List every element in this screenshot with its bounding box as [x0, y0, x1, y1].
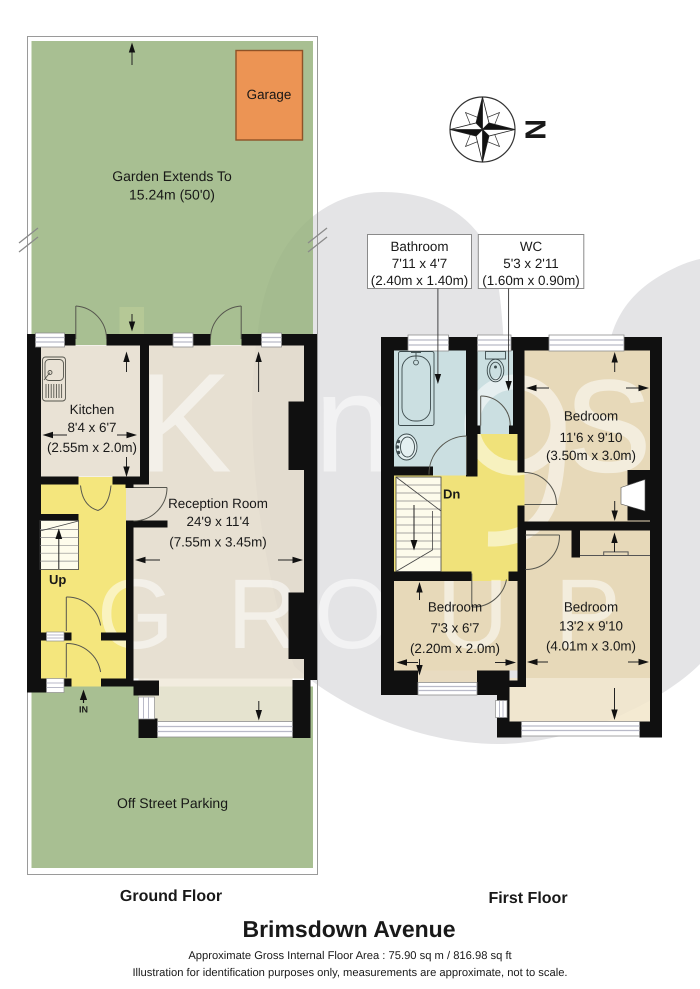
svg-text:Bedroom: Bedroom: [428, 600, 482, 615]
svg-text:Illustration for identificatio: Illustration for identification purposes…: [132, 967, 567, 979]
svg-text:IN: IN: [79, 705, 88, 715]
svg-text:(1.60m x 0.90m): (1.60m x 0.90m): [482, 273, 580, 288]
svg-text:24'9 x 11'4: 24'9 x 11'4: [187, 514, 250, 529]
svg-text:(2.40m x 1.40m): (2.40m x 1.40m): [371, 273, 469, 288]
svg-text:13'2 x 9'10: 13'2 x 9'10: [559, 619, 623, 634]
svg-text:WC: WC: [520, 239, 543, 254]
svg-text:K: K: [138, 344, 232, 502]
svg-text:Reception Room: Reception Room: [168, 496, 268, 511]
svg-text:8'4 x 6'7: 8'4 x 6'7: [67, 420, 116, 435]
svg-text:7'3 x 6'7: 7'3 x 6'7: [430, 621, 479, 636]
svg-text:Off Street Parking: Off Street Parking: [117, 795, 228, 811]
svg-text:Garden Extends To: Garden Extends To: [112, 168, 232, 184]
svg-text:11'6 x 9'10: 11'6 x 9'10: [560, 430, 623, 445]
svg-text:Up: Up: [49, 572, 66, 587]
svg-text:7'11 x 4'7: 7'11 x 4'7: [392, 256, 448, 271]
svg-text:O: O: [314, 558, 391, 669]
svg-text:Garage: Garage: [247, 87, 292, 102]
svg-text:Ground Floor: Ground Floor: [120, 888, 222, 905]
svg-text:(4.01m x 3.0m): (4.01m x 3.0m): [546, 639, 636, 654]
svg-text:Bedroom: Bedroom: [564, 409, 618, 424]
svg-text:Approximate Gross Internal Flo: Approximate Gross Internal Floor Area : …: [188, 950, 512, 962]
svg-text:(7.55m x 3.45m): (7.55m x 3.45m): [169, 535, 267, 550]
svg-text:N: N: [518, 119, 550, 140]
svg-text:First Floor: First Floor: [488, 890, 567, 907]
svg-text:Dn: Dn: [443, 487, 460, 502]
svg-text:G: G: [97, 558, 174, 669]
svg-text:Bedroom: Bedroom: [564, 600, 618, 615]
svg-text:R: R: [227, 558, 299, 669]
svg-text:(2.20m x 2.0m): (2.20m x 2.0m): [410, 641, 500, 656]
svg-text:Kitchen: Kitchen: [70, 402, 115, 417]
svg-text:5'3 x 2'11: 5'3 x 2'11: [503, 256, 559, 271]
svg-text:(2.55m x 2.0m): (2.55m x 2.0m): [47, 440, 137, 455]
svg-text:Bathroom: Bathroom: [390, 239, 448, 254]
svg-text:n: n: [314, 344, 392, 502]
svg-text:Brimsdown Avenue: Brimsdown Avenue: [243, 916, 456, 942]
svg-text:(3.50m x 3.0m): (3.50m x 3.0m): [546, 448, 636, 463]
svg-text:15.24m (50'0): 15.24m (50'0): [129, 187, 215, 203]
